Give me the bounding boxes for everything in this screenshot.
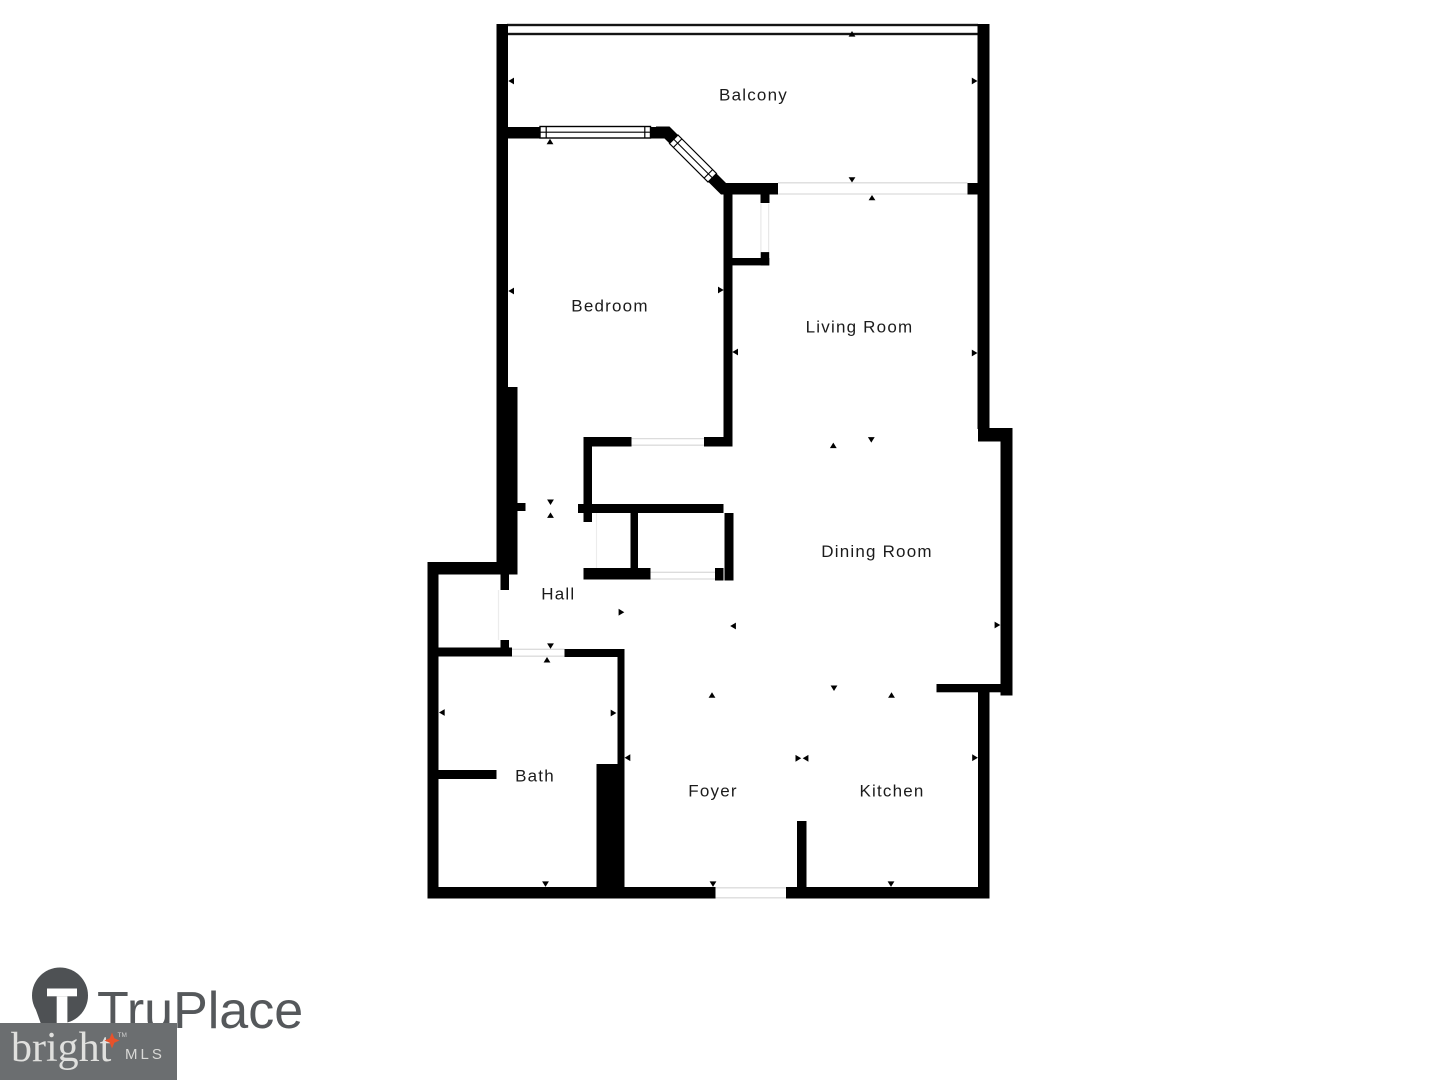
svg-text:Living Room: Living Room	[806, 318, 914, 337]
svg-text:Foyer: Foyer	[688, 782, 737, 801]
svg-text:Bedroom: Bedroom	[571, 297, 648, 316]
svg-text:MLS: MLS	[125, 1046, 165, 1063]
svg-text:Dining Room: Dining Room	[821, 542, 932, 561]
svg-text:Balcony: Balcony	[719, 85, 788, 104]
svg-text:Kitchen: Kitchen	[859, 782, 924, 801]
svg-text:TM: TM	[118, 1032, 127, 1039]
svg-text:Hall: Hall	[541, 584, 575, 603]
svg-text:Bath: Bath	[515, 767, 555, 786]
svg-text:bright: bright	[11, 1025, 112, 1071]
